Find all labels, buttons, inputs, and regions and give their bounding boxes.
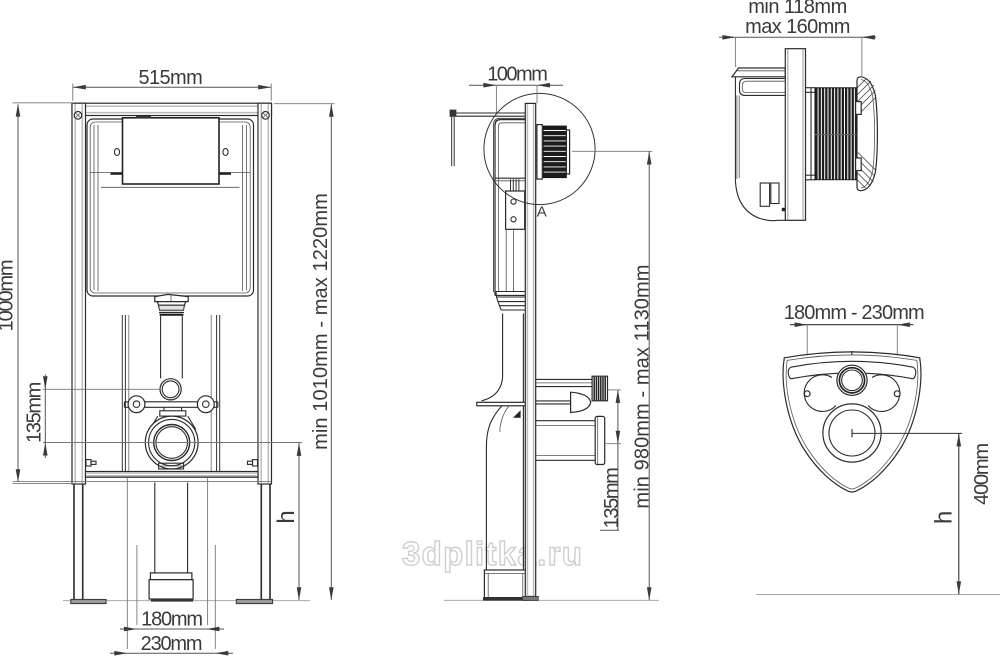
svg-text:180mm - 230mm: 180mm - 230mm xyxy=(784,302,924,324)
svg-text:135mm: 135mm xyxy=(601,468,623,528)
svg-text:h: h xyxy=(931,511,958,524)
svg-text:max 160mm: max 160mm xyxy=(745,16,850,38)
svg-text:180mm: 180mm xyxy=(141,609,202,631)
svg-text:1000mm: 1000mm xyxy=(0,260,18,331)
svg-text:135mm: 135mm xyxy=(23,382,45,442)
svg-text:h: h xyxy=(273,510,300,523)
svg-text:3dplitka.ru: 3dplitka.ru xyxy=(402,535,583,572)
svg-text:515mm: 515mm xyxy=(138,67,202,89)
svg-text:min 1010mm - max 1220mm: min 1010mm - max 1220mm xyxy=(310,193,332,450)
svg-text:400mm: 400mm xyxy=(971,444,993,505)
svg-text:230mm: 230mm xyxy=(141,633,202,655)
svg-text:100mm: 100mm xyxy=(487,64,547,86)
svg-text:min 980mm - max 1130mm: min 980mm - max 1130mm xyxy=(631,264,653,508)
svg-text:A: A xyxy=(537,204,547,221)
